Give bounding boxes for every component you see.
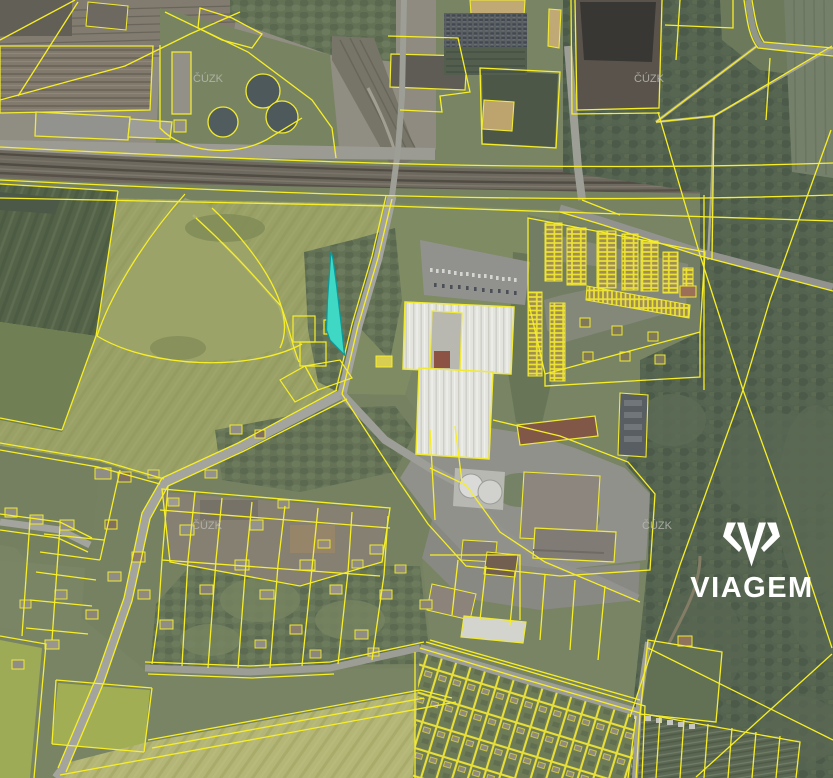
svg-text:VIAGEM: VIAGEM xyxy=(690,572,813,604)
svg-text:ČÚZK: ČÚZK xyxy=(192,519,223,532)
svg-text:ČÚZK: ČÚZK xyxy=(193,72,224,85)
svg-text:ČÚZK: ČÚZK xyxy=(642,519,673,532)
svg-text:ČÚZK: ČÚZK xyxy=(634,72,665,85)
